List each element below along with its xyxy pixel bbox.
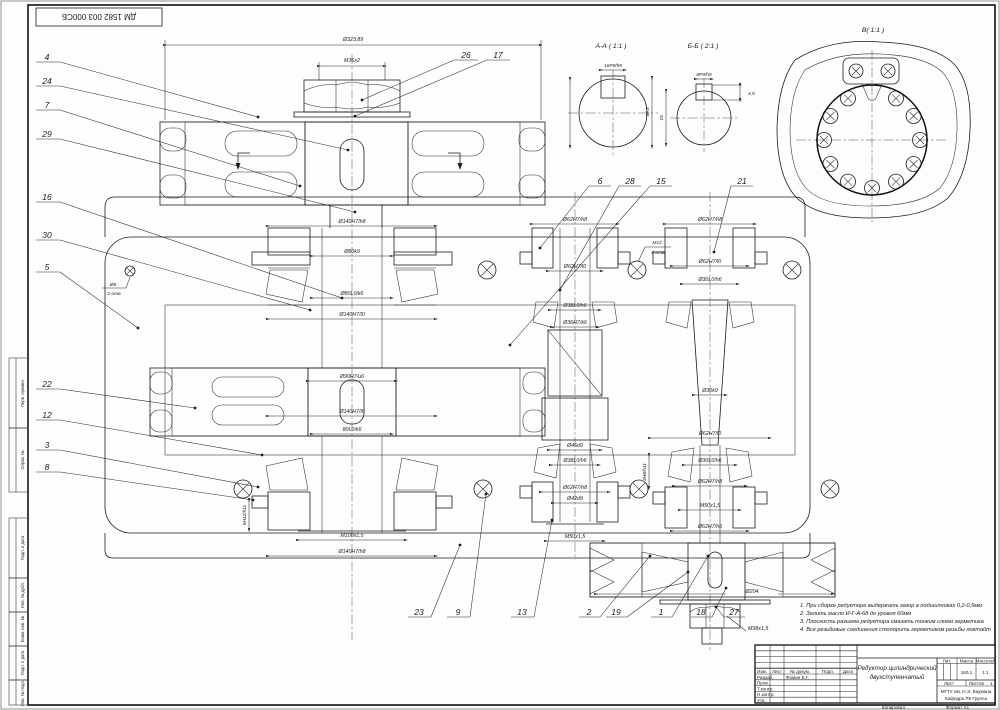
dim-label: M38x1,5: [748, 626, 768, 632]
dim-label: Ø62H7/h8: [562, 217, 587, 223]
tb-label: Лист: [944, 681, 955, 686]
tb-label: Пров.: [757, 681, 769, 686]
dim-label: Ø62H7/h8: [697, 217, 722, 223]
dim-label: Ø42d9: [566, 496, 583, 502]
tb-value: Фомин Е.Г.: [786, 675, 809, 680]
svg-text:3: 3: [45, 440, 50, 450]
tb-value: 1: [990, 681, 993, 686]
section-arrow: [236, 153, 463, 170]
tb-label: Масса: [960, 659, 974, 664]
dim-label: 16P9/h9: [604, 63, 622, 69]
frame-left-columns: Перв. примен. Справ. № Подп. и дата Инв.…: [9, 358, 28, 706]
frame-col-label: Инв. № подл.: [20, 680, 25, 706]
dim-label: Ø140H7/l0: [338, 312, 364, 318]
tb-label: Утв.: [757, 698, 766, 703]
svg-text:15: 15: [656, 176, 666, 186]
copied-label: Копировал: [882, 705, 905, 710]
dim-label: Ø46d9: [566, 443, 583, 449]
svg-text:30: 30: [42, 230, 52, 240]
view-title: Б-Б ( 2:1 ): [688, 43, 719, 50]
svg-text:26: 26: [460, 50, 471, 60]
tb-label: Разраб.: [757, 675, 774, 680]
tb-label: Масштаб: [976, 659, 996, 664]
tb-value: 1:1: [982, 670, 989, 675]
svg-text:18: 18: [696, 607, 706, 617]
section-bb-view: Б-Б ( 2:1 ) 8P9/h9 15 4,9: [659, 43, 755, 152]
svg-text:7: 7: [45, 100, 50, 110]
dim-label: M50x1,5: [700, 503, 720, 509]
left-shaft-dims: Ø140H7/h8 Ø80k9 Ø80L0/k6 Ø140H7/l0 Ø90H7…: [242, 219, 436, 556]
tb-org: Кафедра РК Группа: [945, 696, 988, 701]
tb-label: Лит.: [943, 659, 952, 664]
dim-label: М12: [652, 240, 662, 246]
section-aa-view: А-А ( 1:1 ) 16P9/h9 38,3: [568, 43, 658, 156]
drawing-sheet: Перв. примен. Справ. № Подп. и дата Инв.…: [0, 0, 1000, 710]
dim-label: 5H12/h11: [242, 504, 248, 525]
drawing-title: двухступенчатый: [870, 673, 925, 681]
dim-label: Ø140H7/h8: [337, 549, 365, 555]
tech-req-line: 1. При сборке редуктора выдержать зазор …: [800, 603, 982, 609]
pin-icon: [125, 266, 135, 276]
technical-requirements: 1. При сборке редуктора выдержать зазор …: [799, 603, 991, 633]
svg-text:28: 28: [624, 176, 635, 186]
svg-text:2: 2: [586, 607, 592, 617]
callout: 23 9 13 2 19 1 18 27: [408, 493, 745, 617]
svg-text:6: 6: [598, 176, 603, 186]
bolt-icon: [234, 261, 839, 498]
svg-text:17: 17: [493, 50, 503, 60]
tb-label: Изм.: [757, 669, 767, 674]
designation-stamp: ДМ 1582 003 000СБ: [36, 8, 162, 26]
position-callouts: 4 24 7 29 16 30 5 22 12 3 8 26 17 6 28 1…: [36, 50, 753, 617]
tb-value: 160,1: [961, 670, 973, 675]
svg-text:5: 5: [45, 262, 50, 272]
dim-label: Ø36H7/k6: [562, 320, 587, 326]
dim-label: Ø204: [745, 589, 759, 595]
fasteners: Ø8 2 отв М12 8 отв: [102, 240, 839, 498]
dim-label: M50x1,5: [565, 534, 585, 540]
assembly-drawing-svg: Перв. примен. Справ. № Подп. и дата Инв.…: [0, 0, 1000, 710]
svg-text:21: 21: [736, 176, 747, 186]
tb-label: Н.контр.: [757, 692, 775, 697]
dim-label: Ø62H7/h8: [562, 485, 587, 491]
dim-label: Ø62H7/l0: [698, 431, 721, 437]
dim-label: Ø30L0/h6: [697, 277, 721, 283]
dim-label: 8P9/h9: [696, 72, 712, 78]
svg-text:23: 23: [413, 607, 424, 617]
frame-col-label: Подп. и дата: [20, 535, 25, 560]
dim-label: Ø140H7/h8: [337, 219, 365, 225]
dim-label: 38,3: [645, 107, 651, 117]
svg-text:13: 13: [517, 607, 527, 617]
dim-label: Ø38L0/h6: [562, 303, 586, 309]
svg-text:4: 4: [45, 52, 50, 62]
frame-col-label: Подп. и дата: [20, 650, 25, 675]
dim-label: Ø62H7/h8: [697, 479, 722, 485]
view-title: В( 1:1 ): [862, 27, 884, 34]
title-block: Изм. Лист № докум. Подп. Дата Разраб. Фо…: [755, 645, 996, 710]
tb-label: Т.контр.: [757, 686, 774, 691]
dim-label: Ø80k9: [343, 249, 360, 255]
dim-label: Ø62H7/h6: [697, 524, 722, 530]
tb-label: Подп.: [822, 669, 834, 674]
format-label: Формат А1: [946, 705, 970, 710]
dim-label: Ø90H7/u6: [339, 374, 364, 380]
svg-text:16: 16: [42, 192, 52, 202]
tb-label: Листов: [969, 681, 984, 686]
dim-label: Ø323,89: [342, 37, 363, 43]
frame-col-label: Справ. №: [20, 450, 25, 470]
tb-label: Лист: [772, 669, 783, 674]
designation-stamp-text: ДМ 1582 003 000СБ: [62, 12, 136, 21]
svg-text:8: 8: [45, 462, 50, 472]
dim-label: M36x2: [344, 58, 360, 64]
svg-text:1: 1: [659, 607, 664, 617]
tb-label: № докум.: [790, 669, 810, 674]
dim-label: M100x1,5: [340, 533, 363, 539]
dim-label: 15: [659, 115, 665, 121]
tech-req-line: 3. Плоскость разъема редуктора смазать т…: [800, 619, 984, 625]
frame-col-label: Взам. инв. №: [20, 616, 25, 642]
middle-shaft-dims: Ø62H7/h8 Ø62H7/l0 Ø38L0/h6 Ø36H7/k6 Ø46d…: [532, 217, 649, 541]
tech-req-line: 2. Залить масло И-Г-А-68 до уровня 60мм: [799, 611, 911, 617]
dim-label: Ø8: [109, 282, 117, 288]
big-gear-section: Ø323,89 M36x2: [160, 37, 545, 228]
svg-text:27: 27: [728, 607, 739, 617]
frame-col-label: Перв. примен.: [20, 379, 25, 407]
view-title: А-А ( 1:1 ): [595, 43, 627, 50]
svg-text:29: 29: [41, 129, 52, 139]
dim-label: 8 отв: [651, 250, 665, 256]
dim-label: Ø30L0/h6: [697, 458, 721, 464]
cover-tab: [843, 58, 899, 101]
drawing-title: Редуктор цилиндрический: [857, 664, 937, 672]
dimensions: Ø140H7/h8 Ø80k9 Ø80L0/k6 Ø140H7/l0 Ø90H7…: [242, 217, 833, 632]
right-shaft-dims: Ø62H7/h8 Ø62H7/l0 Ø30L0/h6 Ø30k9 Ø62H7/l…: [596, 217, 833, 632]
centerlines: [352, 54, 710, 650]
dim-label: 4H8/h11: [642, 463, 648, 481]
svg-text:9: 9: [456, 607, 461, 617]
left-shaft-assembly: [150, 228, 545, 533]
dim-label: Ø80L0/k6: [340, 291, 364, 297]
dim-label: Ø30k9: [701, 388, 718, 394]
svg-text:19: 19: [611, 607, 621, 617]
tb-org: МГТУ им. Н.Э. Баумана: [941, 689, 992, 694]
dim-label: 4,9: [748, 91, 755, 97]
svg-text:12: 12: [42, 410, 52, 420]
dim-label: 80L0/k6: [343, 427, 362, 433]
dim-label: Ø38L0/h6: [562, 458, 586, 464]
svg-text:24: 24: [41, 76, 52, 86]
svg-text:22: 22: [41, 379, 52, 389]
frame-col-label: Инв. № дубл.: [20, 582, 25, 608]
tb-label: Дата: [843, 669, 854, 674]
dim-label: Ø140H7/l0: [338, 409, 364, 415]
view-v-cover: В( 1:1 ): [777, 27, 970, 222]
dim-label: 2 отв: [106, 291, 121, 297]
dim-label: Ø62H7/l0: [698, 259, 721, 265]
tech-req-line: 4. Все резьбовые соединения стопорить ге…: [800, 626, 991, 633]
